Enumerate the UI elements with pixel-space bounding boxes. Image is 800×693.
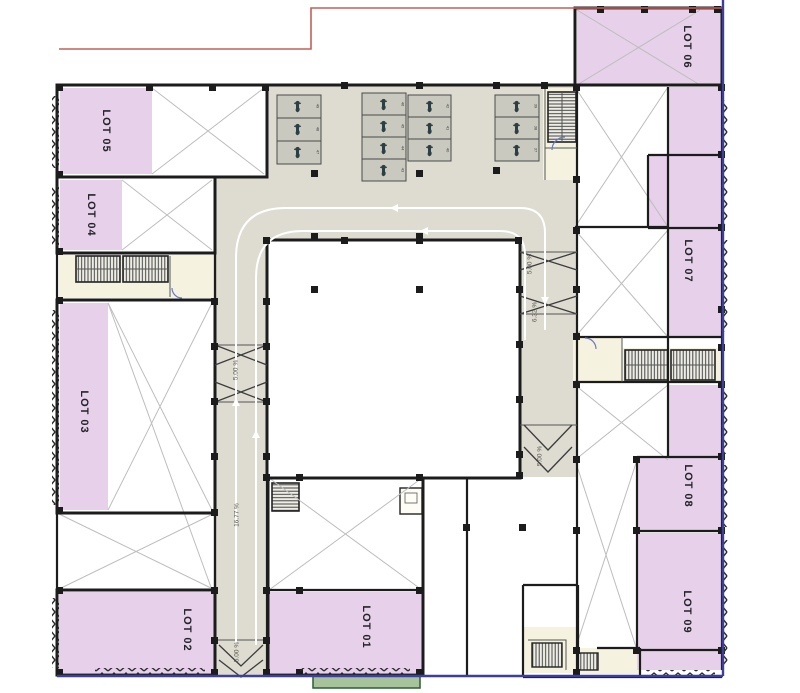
stall-number: 47	[316, 150, 321, 154]
lot-07-area[interactable]	[648, 155, 722, 228]
planter-strip	[313, 676, 420, 688]
lot-06-label: LOT 06	[681, 25, 693, 68]
lot-08-area[interactable]	[637, 458, 722, 531]
lot-06-area[interactable]	[577, 10, 722, 85]
ramp-slope-label: 5.00 %	[234, 642, 241, 662]
stall-number: 41	[446, 126, 451, 130]
lot-03-label: LOT 03	[78, 390, 90, 433]
stall-number: 40	[446, 148, 451, 152]
stall-number: 37	[534, 148, 539, 152]
stall-number: 39	[534, 104, 539, 108]
lot-07-area[interactable]	[668, 87, 722, 155]
ramp-slope-label: 5.00 %	[233, 360, 240, 380]
stall-number: 46	[401, 102, 406, 106]
lot-08-area[interactable]	[667, 385, 722, 457]
stall-number: 38	[534, 126, 539, 130]
lot-08-label: LOT 08	[682, 464, 694, 507]
lane-guides	[232, 204, 549, 645]
lot-02-label: LOT 02	[181, 608, 193, 651]
stall-number: 43	[401, 168, 406, 172]
ramp-slope-label: 5.00 %	[537, 446, 544, 466]
stall-number: 48	[316, 127, 321, 131]
lot-01-area[interactable]	[269, 592, 422, 673]
lot-07-area[interactable]	[667, 228, 722, 337]
ramp-slope-label: 16.77 %	[234, 503, 241, 527]
ramp-slope-label: 6.32 %	[532, 302, 539, 322]
lot-09-label: LOT 09	[681, 590, 693, 633]
stall-number: 45	[401, 124, 406, 128]
floor-plan: LOT 01 LOT 02 LOT 03 LOT 04 LOT 05 LOT 0…	[0, 0, 800, 693]
stall-number: 42	[446, 104, 451, 108]
stall-number: 44	[401, 146, 406, 150]
lot-05-label: LOT 05	[100, 109, 112, 152]
lot-01-label: LOT 01	[360, 605, 372, 648]
lot-04-label: LOT 04	[85, 193, 97, 236]
stall-number: 49	[316, 104, 321, 108]
ramp-slope-label: 5.00 %	[527, 254, 534, 274]
lot-07-label: LOT 07	[682, 239, 694, 282]
